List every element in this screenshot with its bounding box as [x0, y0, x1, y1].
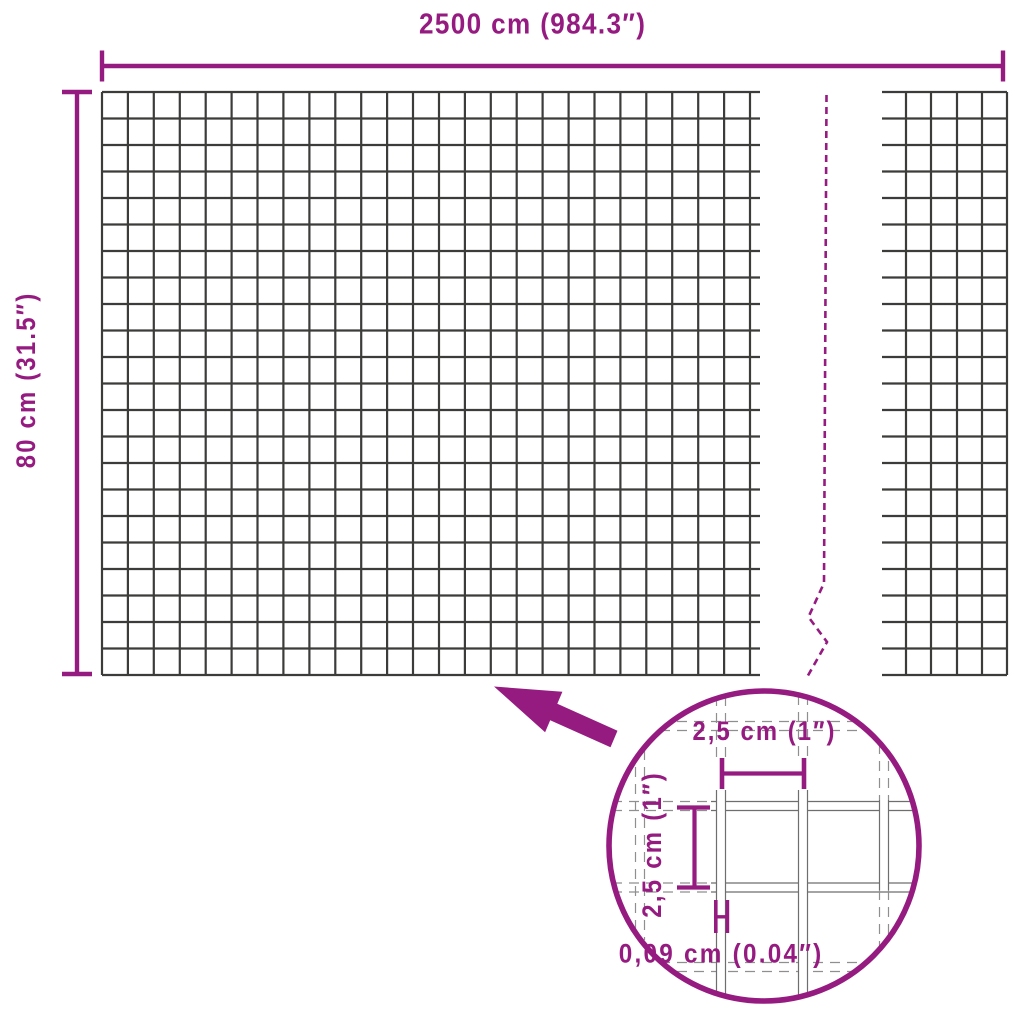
- svg-text:0,09 cm (0.04″): 0,09 cm (0.04″): [619, 939, 821, 968]
- svg-text:2500 cm (984.3″): 2500 cm (984.3″): [419, 7, 645, 40]
- svg-text:2,5 cm (1″): 2,5 cm (1″): [692, 717, 834, 746]
- svg-text:2,5 cm (1″): 2,5 cm (1″): [638, 773, 667, 917]
- svg-text:80 cm (31.5″): 80 cm (31.5″): [12, 294, 41, 469]
